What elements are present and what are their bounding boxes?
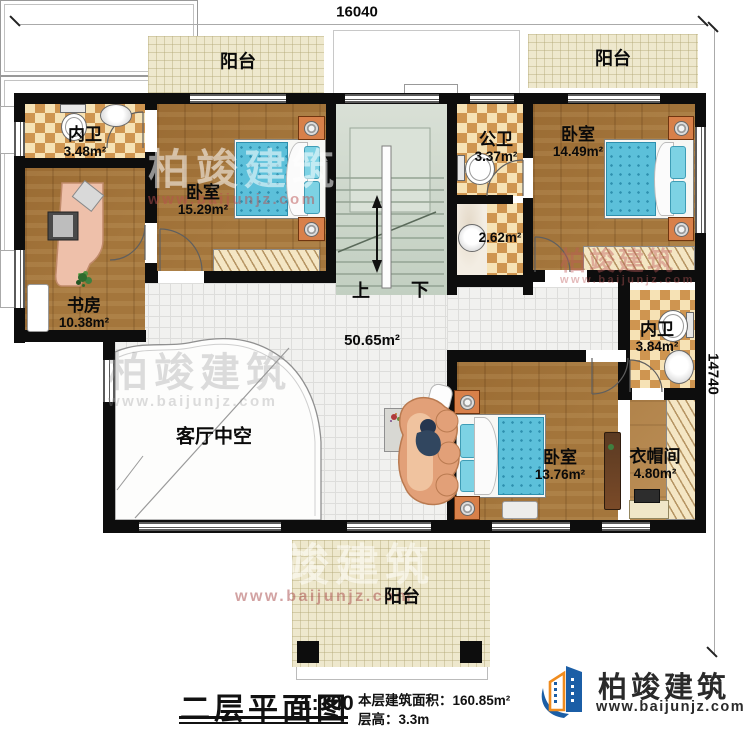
sink-icon bbox=[664, 350, 694, 384]
plant-dot-icon bbox=[608, 444, 614, 450]
room-label-bedroom-left: 卧室15.29m² bbox=[178, 183, 228, 217]
plant-icon bbox=[78, 273, 87, 282]
room-label-balcony-bottom: 阳台 bbox=[384, 587, 420, 608]
room-label-bath-top-left: 内卫3.48m² bbox=[64, 125, 107, 159]
room-label-balcony-top-right: 阳台 bbox=[595, 49, 631, 70]
nightstand-icon bbox=[668, 116, 694, 140]
bed-mattress bbox=[606, 142, 656, 216]
cabinet-icon bbox=[27, 284, 49, 332]
room-label-cloakroom: 衣帽间4.80m² bbox=[630, 447, 681, 481]
room-label-public-bath: 公卫3.37m² bbox=[475, 130, 518, 164]
room-label-balcony-top-left: 阳台 bbox=[220, 52, 256, 73]
stairs-icon bbox=[330, 100, 450, 300]
room-label-bedroom-bottom: 卧室13.76m² bbox=[535, 448, 585, 482]
sink-icon bbox=[100, 104, 132, 127]
bed-pillow bbox=[304, 146, 320, 179]
lamp-icon bbox=[674, 121, 689, 136]
bench-icon bbox=[502, 501, 538, 519]
room-label-wash-room: 2.62m² bbox=[479, 229, 522, 247]
room-label-living-void: 客厅中空 bbox=[176, 426, 252, 447]
tv-icon bbox=[634, 489, 660, 503]
room-label-bath-right: 内卫3.84m² bbox=[636, 320, 679, 354]
lamp-icon bbox=[304, 222, 319, 237]
title-underline bbox=[179, 722, 348, 724]
nightstand-icon bbox=[298, 116, 325, 140]
floor-plan-canvas: 16040 14740 bbox=[0, 0, 750, 732]
lamp-icon bbox=[304, 121, 319, 136]
nightstand-icon bbox=[298, 217, 325, 241]
nightstand-icon bbox=[668, 217, 694, 241]
company-logo-icon bbox=[536, 660, 594, 720]
room-label-study: 书房10.38m² bbox=[59, 296, 109, 330]
lamp-icon bbox=[674, 222, 689, 237]
plan-scale: 1:100 bbox=[300, 692, 354, 716]
bed-mattress bbox=[236, 142, 288, 216]
company-website: www.baijunjz.com bbox=[596, 699, 745, 715]
title-underline bbox=[179, 716, 348, 719]
bed-pillow bbox=[304, 181, 320, 214]
bed-pillow bbox=[670, 181, 686, 214]
floor-height-text: 层高：3.3m bbox=[358, 708, 429, 728]
room-label-bedroom-right: 卧室14.49m² bbox=[553, 125, 603, 159]
bed-pillow bbox=[670, 146, 686, 179]
toilet-icon bbox=[457, 155, 465, 181]
toilet-icon bbox=[60, 104, 86, 113]
stairs-down-label: 下 bbox=[411, 280, 429, 300]
room-label-hall-area: 50.65m² bbox=[344, 332, 400, 350]
sofa-icon bbox=[395, 383, 465, 510]
floor-area-text: 本层建筑面积：160.85m² bbox=[358, 689, 510, 709]
stairs-up-label: 上 bbox=[352, 281, 370, 301]
